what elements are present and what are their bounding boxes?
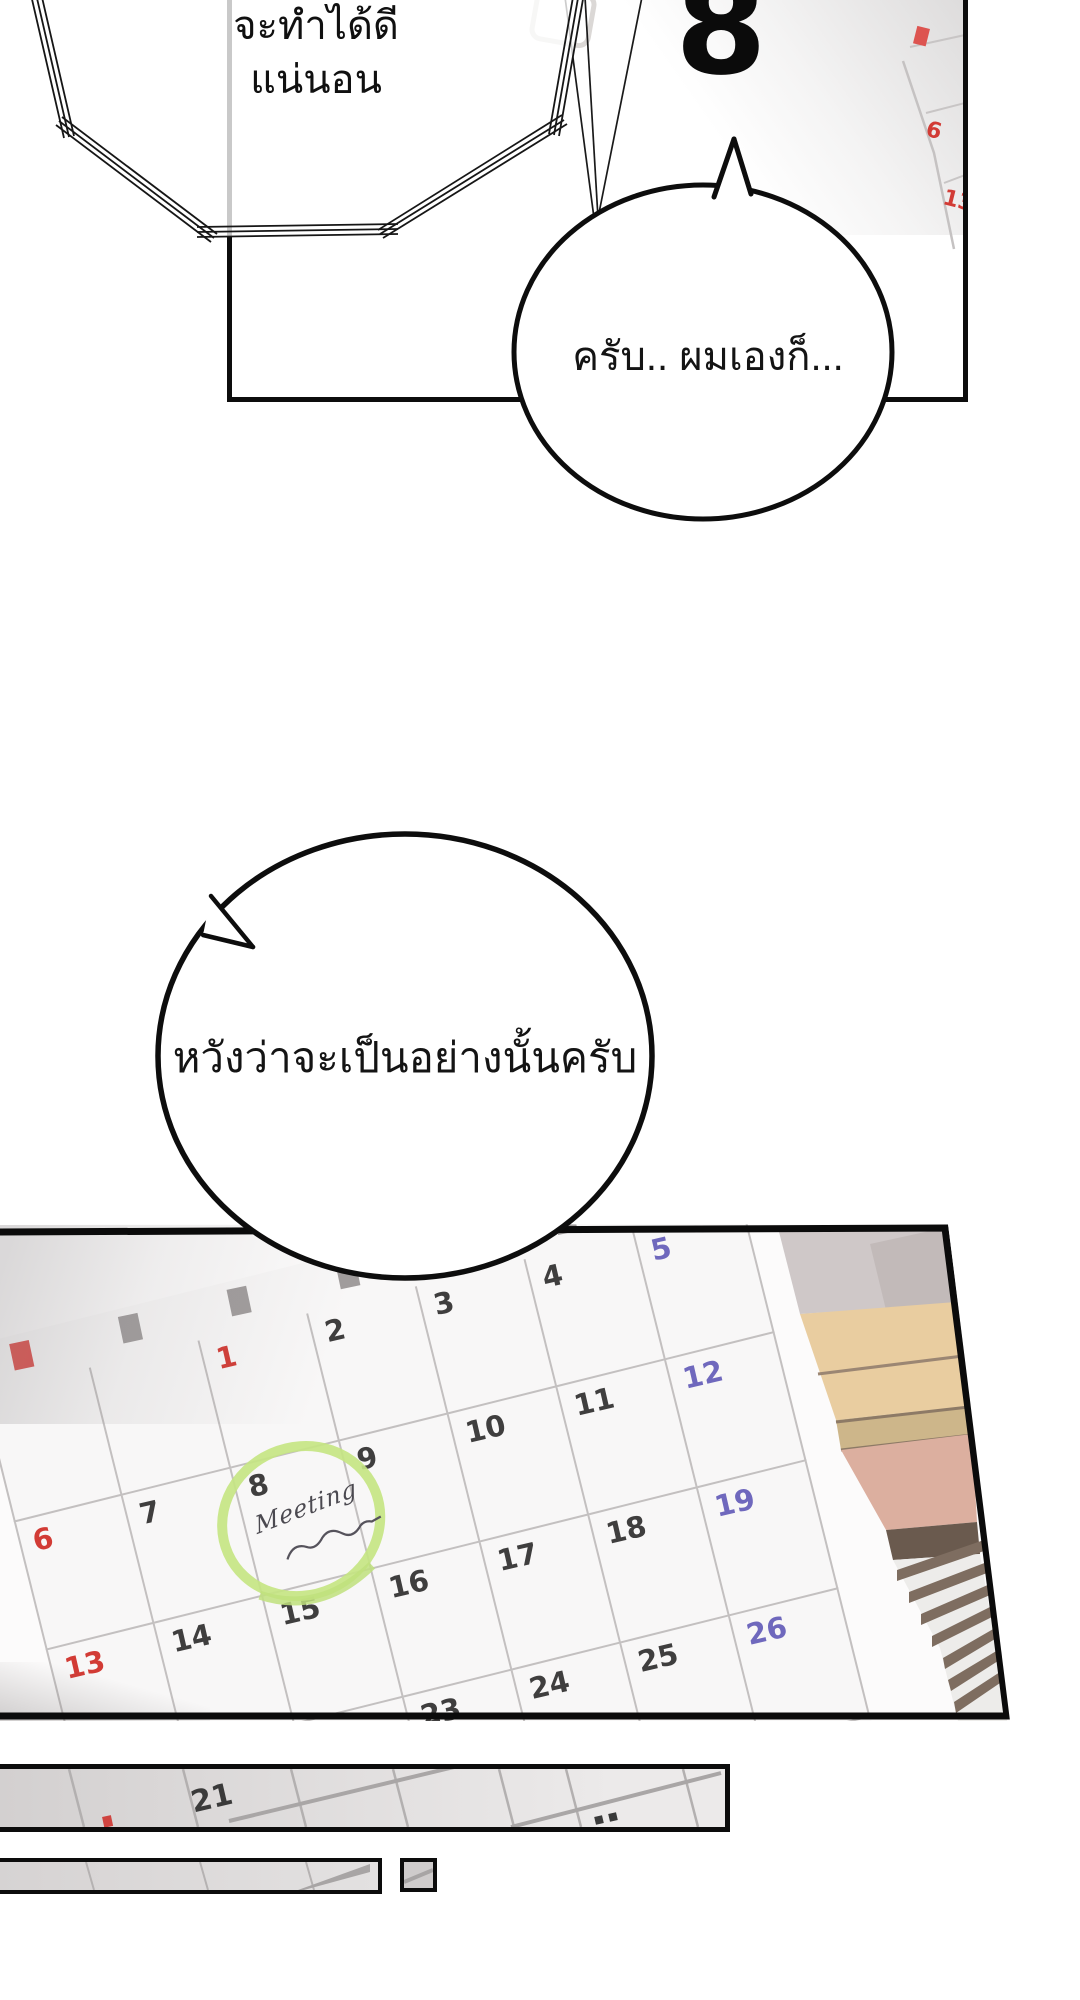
speech-bubble-2 [0, 0, 1080, 2000]
comic-page: 8 6 13 จะทำได้ดี แน่นอน ครับ.. ผมเองก็ [0, 0, 1080, 2000]
speech-bubble-2-text: หวังว่าจะเป็นอย่างนั้นครับ [152, 1032, 658, 1084]
